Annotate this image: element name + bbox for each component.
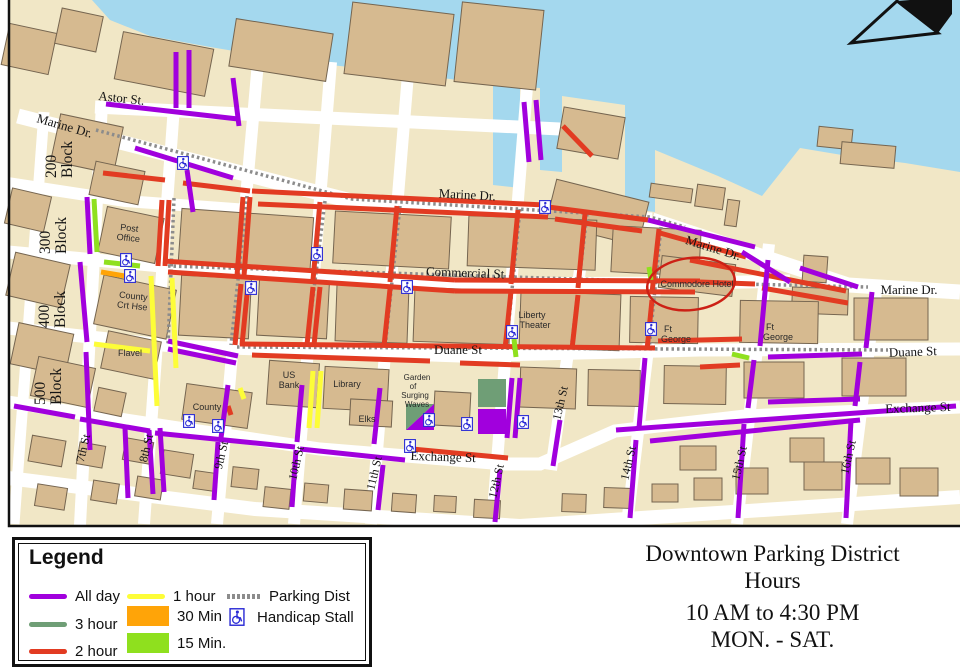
legend-item-handicap: Handicap Stall: [229, 608, 354, 626]
handicap-stall-icon: [540, 201, 551, 214]
label-elks: Elks: [358, 414, 376, 424]
legend-swatch-all-day: [29, 594, 67, 599]
label-county: County: [193, 402, 222, 412]
street-label-duane-east: Duane St: [889, 343, 938, 360]
title-line-4: MON. - SAT.: [585, 626, 960, 653]
street-label-commercial: Commercial St: [426, 264, 505, 282]
handicap-stall-icon: [178, 157, 189, 170]
street-label-marine-center: Marine Dr.: [438, 186, 496, 204]
handicap-stall-icon: [424, 414, 435, 427]
title-line-2: Hours: [585, 567, 960, 594]
legend-item-one-hour: 1 hour: [127, 588, 216, 605]
handicap-stall-icon: [646, 323, 657, 336]
parking-district-map-page: Astor St. Marine Dr. Marine Dr. Marine D…: [0, 0, 960, 670]
title-block: Downtown Parking District Hours 10 AM to…: [585, 540, 960, 653]
legend-label-parking-dist: Parking Dist: [269, 588, 350, 605]
handicap-stall-icon: [246, 282, 257, 295]
handicap-stall-icon: [121, 254, 132, 267]
legend-label-all-day: All day: [75, 588, 120, 605]
legend-swatch-one-hour: [127, 594, 165, 599]
map-canvas: Astor St. Marine Dr. Marine Dr. Marine D…: [0, 0, 960, 532]
label-flavel: Flavel: [118, 348, 142, 358]
label-garden-of-surging-waves: GardenofSurgingWaves: [401, 373, 430, 409]
street-label-marine-east: Marine Dr.: [880, 282, 937, 297]
legend-item-parking-dist: Parking Dist: [227, 588, 350, 605]
label-library: Library: [333, 379, 361, 389]
legend-label-fifteen-min: 15 Min.: [177, 635, 226, 652]
legend-title: Legend: [29, 546, 104, 570]
legend-swatch-three-hour: [29, 622, 67, 627]
label-post-office: PostOffice: [116, 222, 141, 244]
handicap-stall-icon: [213, 420, 224, 433]
label-county-courthouse: CountyCrt Hse: [117, 289, 149, 312]
label-commodore-hotel: Commodore Hotel: [660, 279, 733, 289]
legend-item-three-hour: 3 hour: [29, 616, 118, 633]
legend-item-all-day: All day: [29, 588, 120, 605]
handicap-stall-icon: [507, 326, 518, 339]
legend-item-fifteen-min: 15 Min.: [127, 633, 226, 653]
legend-label-thirty-min: 30 Min: [177, 608, 222, 625]
street-label-exchange: Exchange St: [410, 448, 476, 465]
handicap-stall-icon: [184, 415, 195, 428]
title-line-3: 10 AM to 4:30 PM: [585, 599, 960, 626]
street-label-exchange-east: Exchange St: [885, 399, 951, 416]
legend-label-one-hour: 1 hour: [173, 588, 216, 605]
legend-swatch-thirty-min: [127, 606, 169, 626]
handicap-stall-icon: [125, 270, 136, 283]
legend-label-three-hour: 3 hour: [75, 616, 118, 633]
handicap-stall-icon: [402, 281, 413, 294]
legend-swatch-fifteen-min: [127, 633, 169, 653]
handicap-stall-icon: [312, 248, 323, 261]
handicap-stall-icon: [518, 416, 529, 429]
legend-label-handicap: Handicap Stall: [257, 609, 354, 626]
legend-panel: Legend All day 3 hour 2 hour 1 hour 30 M…: [12, 537, 372, 667]
handicap-stall-icon: [229, 608, 245, 626]
legend-label-two-hour: 2 hour: [75, 643, 118, 660]
legend-item-two-hour: 2 hour: [29, 643, 118, 660]
legend-item-thirty-min: 30 Min: [127, 606, 222, 626]
handicap-stall-icon: [462, 418, 473, 431]
title-line-1: Downtown Parking District: [585, 540, 960, 567]
legend-swatch-parking-dist: [227, 594, 261, 599]
legend-swatch-two-hour: [29, 649, 67, 654]
street-label-duane: Duane St: [434, 342, 482, 357]
